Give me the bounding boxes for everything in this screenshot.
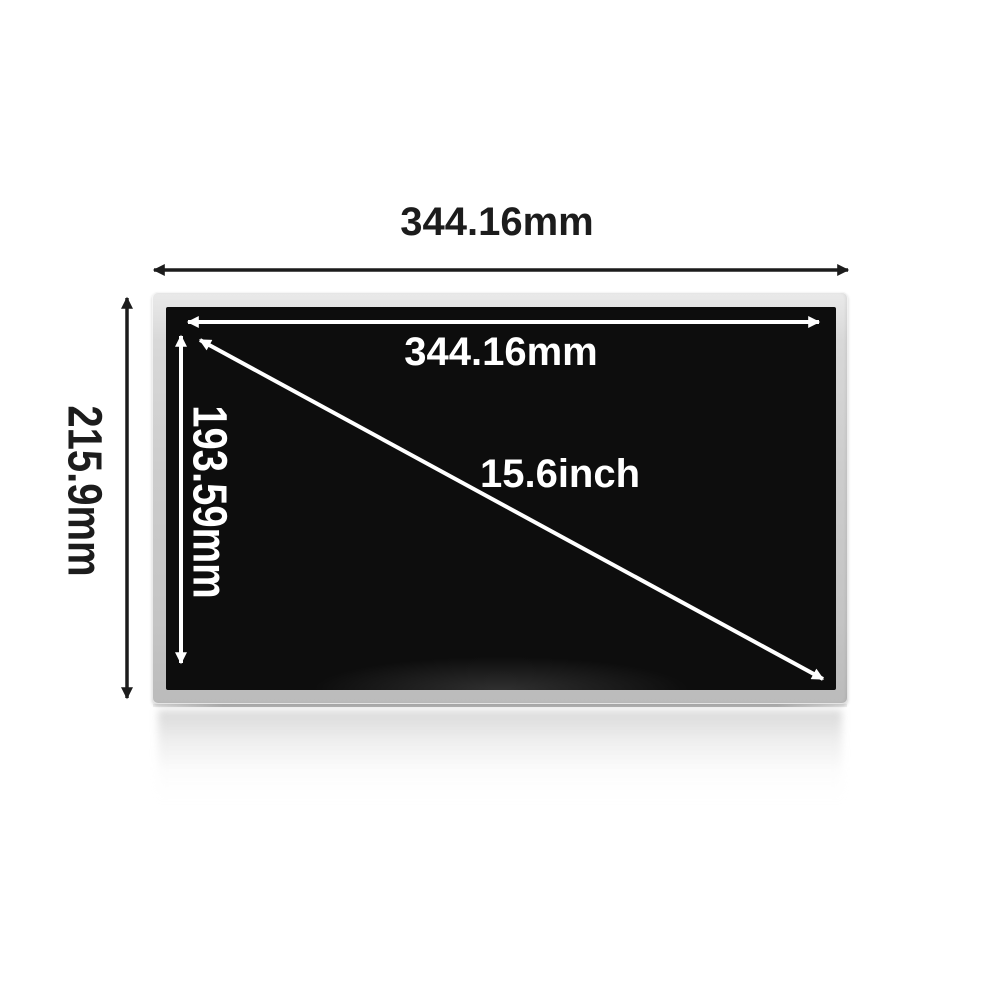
product-dimension-diagram: 344.16mm 215.9mm 344.16mm 193.59mm 15.6i… (0, 0, 1000, 1000)
active-area-height-label: 193.59mm (185, 405, 233, 598)
panel-reflection (158, 710, 842, 802)
active-area-width-label: 344.16mm (404, 332, 597, 372)
diagonal-size-label: 15.6inch (480, 454, 640, 494)
outer-height-label: 215.9mm (60, 405, 108, 576)
panel-bottom-edge (153, 704, 847, 707)
outer-width-label: 344.16mm (400, 202, 593, 242)
